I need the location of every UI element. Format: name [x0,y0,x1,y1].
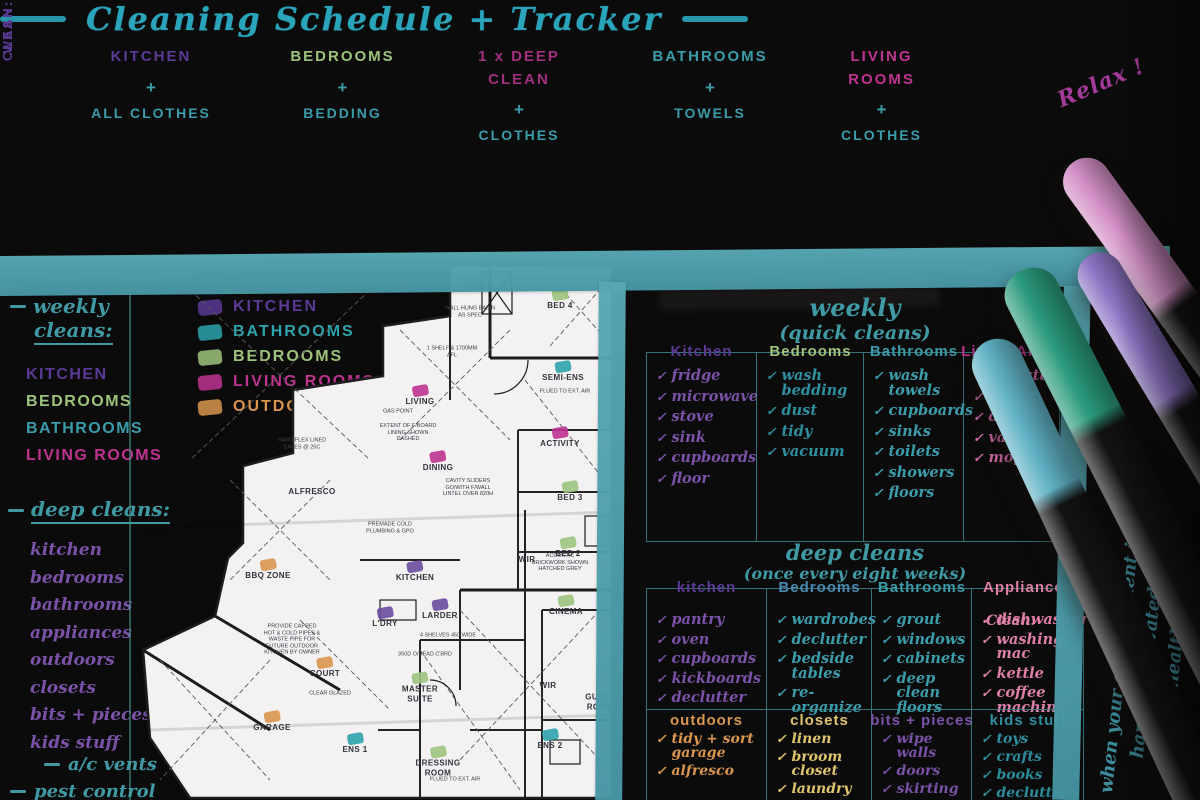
checkmark-icon: ✓ [656,432,666,445]
item-text: declutter [791,633,866,648]
item-text: fridge [671,369,720,384]
item-text: skirting [896,782,958,796]
room-name: ALFRESCO [288,487,335,497]
schedule-day-column: f LIVING ROOMS + CLOTHES [805,0,958,143]
floorplan-room-label: CINEMA [549,595,583,617]
checkmark-icon: ✓ [981,634,991,647]
checklist-item: ✓ cupboards [656,652,764,667]
floorplan-room-label: SEMI-ENS [542,361,584,383]
plus-sign: + [877,100,887,120]
checkmark-icon: ✓ [981,668,991,681]
schedule-day-column: w 1 x DEEP CLEAN + CLOTHES [435,0,603,143]
checkmark-icon: ✓ [656,733,666,746]
checkmark-icon: ✓ [881,765,891,778]
checkmark-icon: ✓ [656,452,666,465]
item-text: grout [896,613,941,628]
checklist-item: ✓ kickboards [656,672,764,687]
wash-task: CLOTHES [841,127,922,143]
checkmark-icon: ✓ [873,426,883,439]
floorplan-annotation: PREMADE COLD PLUMBING & GPO [361,521,419,534]
column-header: kitchen [677,579,737,596]
floorplan-room-label: LIVING [405,385,434,407]
item-text: wash towels [888,369,962,398]
wash-task: TOWELS [674,105,746,121]
floorplan-annotation: 350d O/HEAD C'BRD [396,652,454,659]
room-scribble-mark [263,710,281,724]
table-column: Bathrooms ✓ wash towels ✓ cupboards ✓ si… [863,353,964,541]
item-text: windows [896,633,965,648]
checklist-item: ✓ tidy + sort garage [656,732,764,760]
checkmark-icon: ✓ [776,687,786,700]
checkmark-icon: ✓ [981,733,991,746]
checkmark-icon: ✓ [981,769,991,782]
floorplan-room-label: KITCHEN [396,561,434,583]
checklist: ✓ fridge ✓ microwave ✓ stove ✓ sink [647,353,756,486]
table-column: bits + pieces ✓ wipe walls ✓ doors ✓ sk [871,710,972,800]
checklist-item: ✓ floor [656,472,754,487]
checklist: ✓ wash bedding ✓ dust ✓ tidy ✓ vacuum [757,353,864,460]
item-text: linen [791,732,831,746]
item-text: oven [671,633,709,648]
checklist-item: ✓ tidy [766,425,862,440]
item-text: wash bedding [781,369,862,398]
checklist-item: ✓ cupboards [656,451,754,466]
floorplan-room-label: LARDER [422,599,458,621]
clean-task: LIVING ROOMS [848,46,915,91]
checkmark-icon: ✓ [981,687,991,700]
floorplan-room-label: ENS 2 [537,729,562,751]
schedule-day-column: t BATHROOMS + TOWELS [615,0,805,121]
deep-cleans-table: kitchen ✓ pantry ✓ oven ✓ cu [646,588,1084,800]
floorplan-annotation: WALL HUNG BASIN AS SPEC [441,305,499,318]
room-name: MASTER SUITE [402,684,438,703]
table-column: Kitchen ✓ fridge ✓ microwave ✓ stove [647,353,756,541]
item-text: showers [888,466,954,481]
checklist-item: ✓ broom closet [776,750,870,778]
item-text: books [996,768,1042,782]
journal-photo: Cleaning Schedule + Tracker CLEAN:WASH: … [0,0,1200,800]
wash-task: ALL CLOTHES [91,105,211,121]
room-name: KITCHEN [396,573,434,583]
schedule-row-label: WASH: [0,0,15,53]
room-scribble-mark [561,480,579,494]
item-text: wardrobes [791,613,876,628]
table-column: closets ✓ linen ✓ broom closet ✓ laundr [766,710,872,800]
washi-tape-plan-edge [595,282,626,800]
checklist-item: ✓ showers [873,466,962,481]
checkmark-icon: ✓ [881,673,891,686]
checklist-item: ✓ stove [656,410,754,425]
floorplan-annotation: EXTENT OF F/BOARD LINING SHOWN DASHED [379,423,437,443]
checkmark-icon: ✓ [881,733,891,746]
checklist: ✓ pantry ✓ oven ✓ cupboards ✓ kickboards [647,589,766,706]
floorplan-annotation: 1 SHELF & 1700mm AFL [423,345,481,358]
checkmark-icon: ✓ [656,634,666,647]
item-text: kettle [996,667,1043,682]
item-text: bedside tables [791,652,870,681]
checklist-item: ✓ microwave [656,390,754,405]
item-text: pantry [671,613,724,628]
checkmark-icon: ✓ [981,751,991,764]
checklist-item: ✓ laundry [776,782,870,796]
room-name: DRESSING ROOM [416,758,461,777]
room-scribble-mark [376,606,394,620]
floorplan-room-label: ENS 1 [342,733,367,755]
room-name: DINING [423,463,453,473]
checkmark-icon: ✓ [656,391,666,404]
checkmark-icon: ✓ [776,733,786,746]
room-name: BED 3 [557,493,583,503]
room-scribble-mark [541,728,559,742]
checklist: ✓ wash towels ✓ cupboards ✓ sinks ✓ toil… [864,353,964,501]
checklist-item: ✓ wardrobes [776,613,870,628]
checkmark-icon: ✓ [766,426,776,439]
checkmark-icon: ✓ [656,473,666,486]
item-text: cupboards [671,652,756,667]
item-text: laundry [791,782,851,796]
floorplan-room-label: BED 3 [557,481,583,503]
plus-sign: + [146,78,156,98]
item-dash [10,790,26,793]
room-scribble-mark [259,558,277,572]
floorplan-annotation: HARDIFLEX LINED EAVES @ 25c [273,437,331,450]
floorplan-room-label: GARAGE [253,711,291,733]
item-text: microwave [671,390,758,405]
floorplan-annotation: GAS POINT [369,409,427,416]
room-scribble-mark [316,656,334,670]
checkmark-icon: ✓ [973,411,983,424]
room-name: CINEMA [549,607,583,617]
room-scribble-mark [429,745,447,759]
room-name: COURT [310,669,340,679]
checklist-item: ✓ grout [881,613,970,628]
checklist-item: ✓ skirting [881,782,970,796]
floorplan-room-label: DINING [423,451,453,473]
item-text: floors [888,486,934,501]
checkmark-icon: ✓ [776,634,786,647]
checklist-item: ✓ sink [656,431,754,446]
heading-text: weekly [33,294,109,318]
heading-line: cleans: [34,318,113,345]
checklist: ✓ wardrobes ✓ declutter ✓ bedside tables… [767,589,872,715]
column-header: closets [790,712,849,729]
room-scribble-mark [559,536,577,550]
floorplan-room-label: ALFRESCO [288,487,335,497]
checklist-item: ✓ declutter [656,691,764,706]
item-text: toys [996,732,1028,746]
column-pre-label: Clean: [986,613,1036,629]
item-text: doors [896,764,940,778]
checkmark-icon: ✓ [973,452,983,465]
floorplan-annotation: CAVITY SLIDERS GO/WITH F/WALL LINTEL OVE… [439,478,497,498]
checklist-item: ✓ toilets [873,445,962,460]
item-text: toilets [888,445,939,460]
checkmark-icon: ✓ [873,467,883,480]
item-text: stove [671,410,713,425]
checklist-item: ✓ vacuum [766,445,862,460]
column-header: outdoors [670,712,743,729]
checklist-item: ✓ bedside tables [776,652,870,681]
heading-line: weekly [10,294,113,318]
table-column: Bedrooms ✓ wash bedding ✓ dust ✓ tidy [756,353,864,541]
floorplan-room-label: L'DRY [372,607,397,629]
table-column: Bathrooms ✓ grout ✓ windows ✓ [871,589,972,709]
column-header: Bedrooms [778,579,860,596]
floorplan-room-label: WIR [540,681,557,691]
schedule-day-column: w/e Relax ! [958,0,1184,112]
checklist-item: ✓ doors [881,764,970,778]
item-text: tidy [781,425,812,440]
room-scribble-mark [557,594,575,608]
checklist-item: ✓ cupboards [873,404,962,419]
checkmark-icon: ✓ [873,487,883,500]
checkmark-icon: ✓ [766,405,776,418]
floorplan-annotation: CLEAR GLAZED [301,691,359,698]
item-dash [44,763,60,766]
room-name: LARDER [422,611,458,621]
room-scribble-mark [429,450,447,464]
deep-cleans-title: deep cleans [640,540,1070,565]
checkmark-icon: ✓ [881,653,891,666]
clean-task: Relax ! [1053,53,1148,113]
room-scribble-mark [406,560,424,574]
room-scribble-mark [411,671,429,685]
room-name: ENS 1 [342,745,367,755]
checkmark-icon: ✓ [776,614,786,627]
room-scribble-mark [431,598,449,612]
checkmark-icon: ✓ [656,370,666,383]
checkmark-icon: ✓ [973,432,983,445]
item-text: cabinets [896,652,965,667]
table-column: outdoors ✓ tidy + sort garage ✓ alfresco [647,710,766,800]
checklist-item: ✓ oven [656,633,764,648]
room-name: L'DRY [372,619,397,629]
item-text: alfresco [671,764,733,778]
checkmark-icon: ✓ [873,370,883,383]
wash-task: CLOTHES [479,127,560,143]
checkmark-icon: ✓ [766,370,776,383]
checklist-item: ✓ sinks [873,425,962,440]
room-scribble-mark [411,384,429,398]
column-header: Kitchen [670,343,732,360]
checklist-item: ✓ linen [776,732,870,746]
checklist-item: ✓ windows [881,633,970,648]
clean-task: KITCHEN [111,46,192,69]
room-scribble-mark [551,426,569,440]
floorplan-room-label: MASTER SUITE [402,672,438,703]
checklist-item: ✓ cabinets [881,652,970,667]
deep-cleans-bottom-section: outdoors ✓ tidy + sort garage ✓ alfresco… [647,709,1083,800]
floorplan-annotation: FLUED TO EXT. AIR [426,777,484,784]
item-text: tidy + sort garage [671,732,753,760]
checkmark-icon: ✓ [881,783,891,796]
room-name: ACTIVITY [540,439,580,449]
item-text: wipe walls [896,732,970,760]
item-text: cupboards [671,451,756,466]
floorplan-annotation: FLUED TO EXT. AIR [536,389,594,396]
checklist-item: ✓ wipe walls [881,732,970,760]
checkmark-icon: ✓ [656,614,666,627]
checklist-item: ✓ fridge [656,369,754,384]
checklist-item: ✓ wash bedding [766,369,862,398]
checklist-item: ✓ pantry [656,613,764,628]
clean-task: 1 x DEEP CLEAN [478,46,560,91]
floorplan-annotation: ACOUSTIC BRICKWORK SHOWN HATCHED GREY [531,553,589,573]
room-name: GARAGE [253,723,291,733]
room-name: SEMI-ENS [542,373,584,383]
floorplan-room-label: COURT [310,657,340,679]
floorplan-room-label: DRESSING ROOM [416,746,461,777]
checkmark-icon: ✓ [776,653,786,666]
floorplan-room-label: BED 4 [547,289,573,311]
table-column: Bedrooms ✓ wardrobes ✓ declutter ✓ [766,589,872,709]
item-text: floor [671,472,709,487]
checkmark-icon: ✓ [656,653,666,666]
table-column: kitchen ✓ pantry ✓ oven ✓ cu [647,589,766,709]
plus-sign: + [514,100,524,120]
checklist-item: ✓ floors [873,486,962,501]
checkmark-icon: ✓ [776,751,786,764]
checkmark-icon: ✓ [873,446,883,459]
item-text: sink [671,431,705,446]
schedule-day-column: m KITCHEN + ALL CLOTHES [52,0,250,121]
room-name: BBQ ZONE [245,571,290,581]
checklist-item: ✓ wash towels [873,369,962,398]
checkmark-icon: ✓ [656,411,666,424]
item-text: sinks [888,425,930,440]
checklist-item: ✓ alfresco [656,764,764,778]
room-name: LIVING [405,397,434,407]
checklist: ✓ grout ✓ windows ✓ cabinets ✓ deep clea… [872,589,972,715]
item-text: cupboards [888,404,973,419]
heading-dash [10,305,26,308]
floorplan-annotation: 4 SHELVES 450 WIDE [419,633,477,640]
item-text: declutter [671,691,746,706]
checkmark-icon: ✓ [881,614,891,627]
column-header: Bathrooms [870,343,958,360]
checkmark-icon: ✓ [656,692,666,705]
weekly-cleans-heading: weekly cleans: [10,294,113,345]
washi-tape-horizontal [0,246,1170,296]
schedule-day-column: t BEDROOMS + BEDDING [250,0,435,121]
room-scribble-mark [346,732,364,746]
checkmark-icon: ✓ [873,405,883,418]
floorplan-annotation: PROVIDE CAPPED HOT & COLD PIPES & WASTE … [263,624,321,657]
heading-text: cleans: [34,318,113,345]
room-name: WIR [540,681,557,691]
room-name: BED 4 [547,301,573,311]
column-header: bits + pieces [870,712,973,729]
checkmark-icon: ✓ [766,446,776,459]
item-text: broom closet [791,750,870,778]
checkmark-icon: ✓ [656,765,666,778]
checkmark-icon: ✓ [776,783,786,796]
plus-sign: + [705,78,715,98]
floorplan-room-label: ACTIVITY [540,427,580,449]
checkmark-icon: ✓ [881,634,891,647]
deep-cleans-top-section: kitchen ✓ pantry ✓ oven ✓ cu [647,589,1083,709]
floorplan-room-label: BBQ ZONE [245,559,290,581]
heading-dash [8,509,24,512]
room-scribble-mark [554,360,572,374]
checkmark-icon: ✓ [656,673,666,686]
checkmark-icon: ✓ [981,787,991,800]
item-text: kickboards [671,672,761,687]
column-header: Bedrooms [769,343,851,360]
checklist-item: ✓ declutter [776,633,870,648]
plus-sign: + [338,78,348,98]
checklist-item: ✓ dust [766,404,862,419]
clean-task: BEDROOMS [290,46,394,69]
column-header: Bathrooms [878,579,966,596]
wash-task: BEDDING [303,105,382,121]
room-name: ENS 2 [537,741,562,751]
item-text: dust [781,404,817,419]
clean-task: BATHROOMS [652,46,767,69]
item-text: crafts [996,750,1041,764]
item-text: vacuum [781,445,844,460]
